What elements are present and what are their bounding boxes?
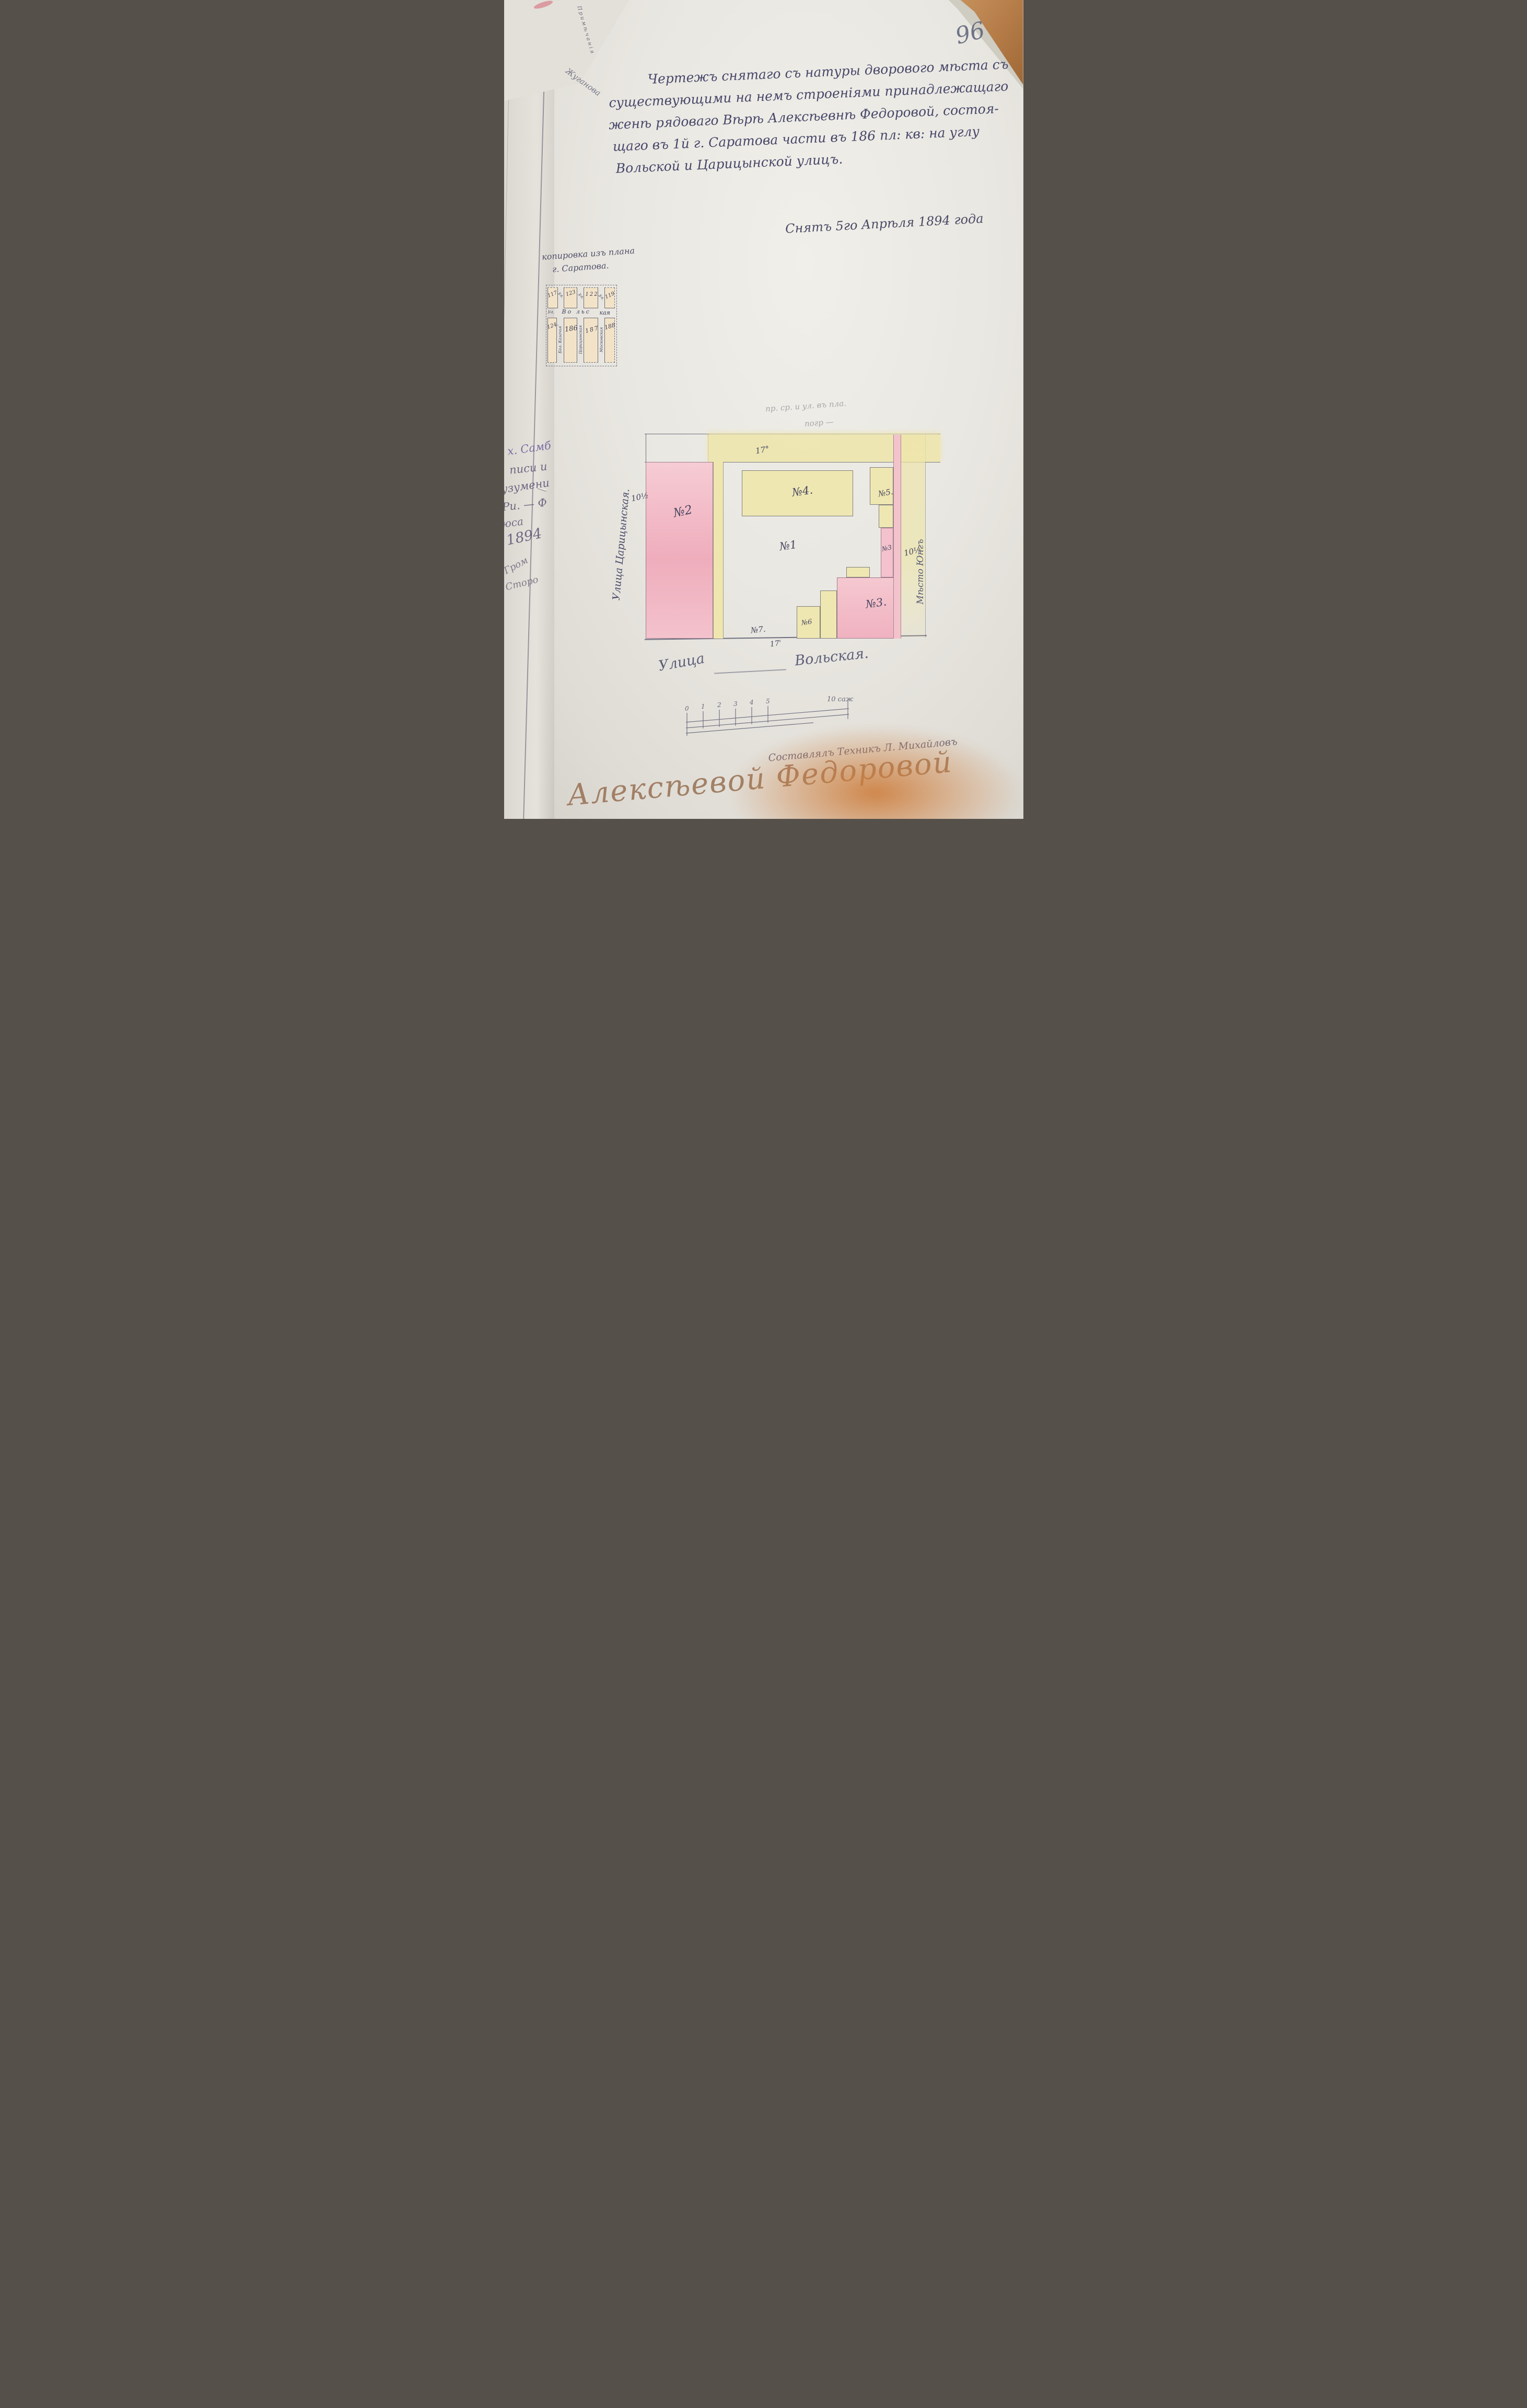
building-n2 <box>646 462 713 639</box>
building-n5-upper <box>870 467 893 505</box>
street-tsaritsynskaya-label: Улица Царицынская. <box>608 458 634 631</box>
building-n5-lower <box>879 505 893 528</box>
label-n6: №6 <box>801 618 812 628</box>
street-volskaya-label-name: Вольская. <box>794 645 869 669</box>
bottom-right-blur <box>729 725 1021 819</box>
scale-tick-0: 0 <box>685 705 689 712</box>
inset-caption-line2: г. Саратова. <box>552 260 609 274</box>
page-number: 96 <box>952 17 987 50</box>
plan-top-boundary <box>645 434 940 434</box>
yard-yellow-strip <box>713 462 724 639</box>
scale-tick-2: 2 <box>717 701 721 709</box>
scale-tick-1: 1 <box>701 703 705 710</box>
label-n1: №1 <box>778 538 797 553</box>
inset-block-number: 122 <box>586 292 599 297</box>
survey-date: Снятъ 5го Апрѣля 1894 года <box>785 211 984 236</box>
underpage-strip <box>504 0 554 819</box>
inset-city-plan: 117 123 122 119 ул. ул. ул. ул. Во льс к… <box>546 285 617 366</box>
yellow-step <box>846 567 870 577</box>
dim-bottom-17: 17' <box>769 639 782 649</box>
inset-vstreet-moskovskaya: Московская <box>599 318 603 362</box>
east-pink-boundary-strip <box>893 435 901 639</box>
scale-end-label: 10 саж <box>827 696 854 703</box>
inset-ul-label: ул. <box>547 309 555 315</box>
scale-tick-4: 4 <box>749 699 754 706</box>
yellow-column <box>820 591 837 639</box>
neighbor-note-right: Мѣсто Юнгъ <box>915 506 926 637</box>
property-plan: №2 №4. №5. №1 №3 №3. №6 №7. 17° 17' 10½ … <box>645 426 940 646</box>
archival-document-photo: Примѣчанія Жуганова 96 Чертежъ снятаго с… <box>504 0 1023 819</box>
street-volskaya-label-ulitsa: Улица <box>657 651 705 675</box>
label-n7: №7. <box>750 624 766 635</box>
inset-vstreet-tsaritsynskaya: Царицынская <box>578 318 582 362</box>
inset-block <box>584 287 598 308</box>
street-label-dash <box>714 669 786 674</box>
heading-block: Чертежъ снятаго съ натуры дворового мѣст… <box>606 53 1018 180</box>
inset-caption-line1: копировка изъ плана <box>541 246 635 262</box>
scale-tick-5: 5 <box>766 698 770 705</box>
scale-tick-3: 3 <box>733 700 738 708</box>
inset-street-volskaya-part2: кая <box>600 309 610 316</box>
pencil-note-line1: пр. ср. и ул. въ пла. <box>765 399 846 414</box>
inset-vstreet-bolshaya-kazachya: Бол. Казачья <box>557 318 562 362</box>
inset-street-volskaya-part1: Во льс <box>562 308 591 315</box>
